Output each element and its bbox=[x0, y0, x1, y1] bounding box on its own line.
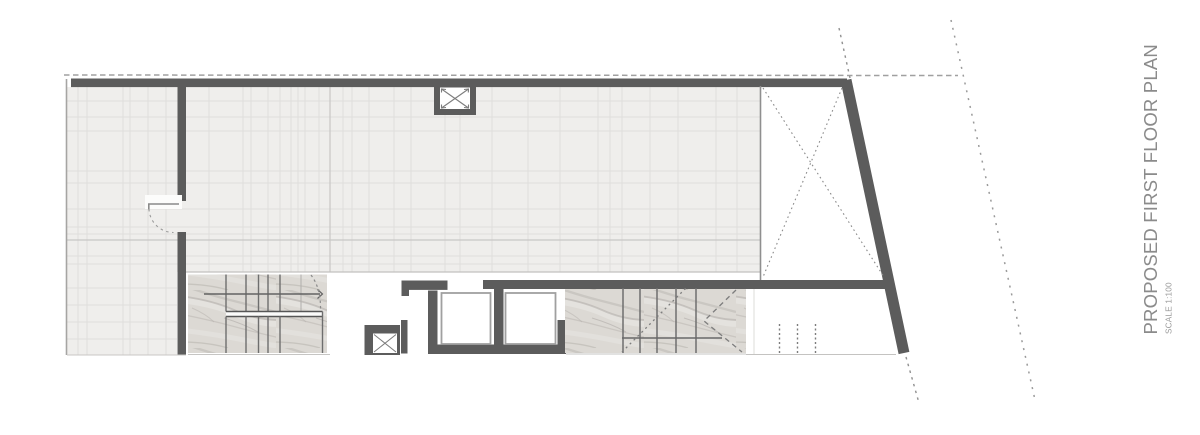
svg-text:SCALE 1:100: SCALE 1:100 bbox=[1165, 282, 1174, 334]
svg-text:PROPOSED FIRST FLOOR PLAN: PROPOSED FIRST FLOOR PLAN bbox=[1140, 44, 1161, 334]
